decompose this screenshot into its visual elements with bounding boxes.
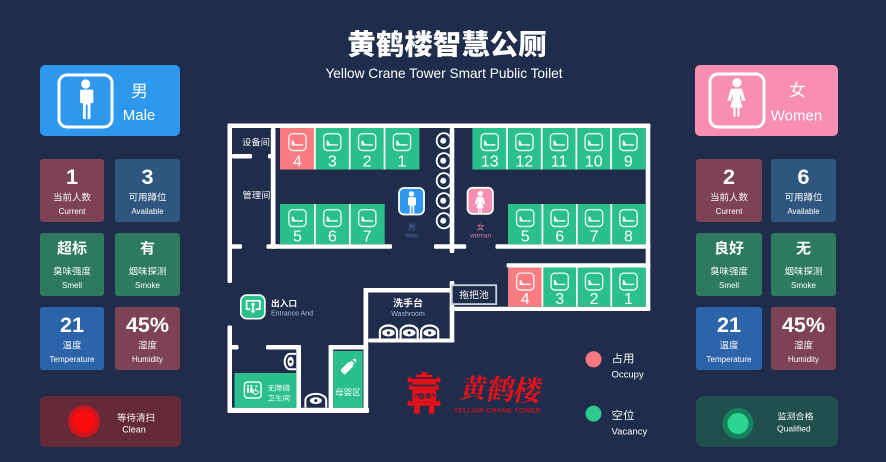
svg-text:Qualified: Qualified (777, 424, 811, 434)
svg-text:21: 21 (717, 313, 741, 337)
svg-text:Vacancy: Vacancy (612, 427, 648, 438)
svg-text:12: 12 (515, 154, 533, 171)
svg-text:2: 2 (590, 291, 599, 308)
svg-text:3: 3 (328, 154, 337, 171)
svg-text:Man: Man (405, 233, 418, 240)
svg-text:6: 6 (798, 165, 810, 189)
svg-text:13: 13 (481, 154, 499, 171)
svg-text:Clean: Clean (122, 425, 146, 435)
svg-text:Women: Women (771, 108, 822, 125)
svg-text:1: 1 (624, 291, 633, 308)
svg-text:2: 2 (723, 165, 735, 189)
svg-text:3: 3 (142, 165, 154, 189)
svg-text:Current: Current (59, 207, 86, 216)
svg-text:5: 5 (293, 229, 302, 246)
svg-text:Available: Available (131, 207, 164, 216)
svg-text:Smell: Smell (62, 281, 82, 290)
svg-text:1: 1 (398, 154, 407, 171)
svg-text:4: 4 (293, 154, 302, 171)
svg-text:45%: 45% (126, 313, 169, 337)
svg-text:6: 6 (328, 229, 337, 246)
svg-text:Washroom: Washroom (391, 311, 425, 318)
svg-text:10: 10 (585, 154, 603, 171)
svg-text:11: 11 (551, 154, 568, 171)
svg-text:4: 4 (521, 291, 530, 308)
svg-text:Humidity: Humidity (788, 355, 819, 364)
svg-text:Available: Available (787, 207, 820, 216)
svg-text:Current: Current (716, 207, 743, 216)
svg-text:Smell: Smell (719, 281, 739, 290)
svg-text:Occupy: Occupy (612, 370, 644, 381)
svg-text:Yellow Crane Tower Smart Publi: Yellow Crane Tower Smart Public Toilet (325, 66, 562, 81)
svg-text:Entrance And: Entrance And (271, 310, 313, 317)
svg-text:1: 1 (66, 165, 78, 189)
svg-text:YELLOW CRANE TOWER: YELLOW CRANE TOWER (454, 407, 542, 414)
svg-text:9: 9 (624, 154, 633, 171)
svg-text:7: 7 (590, 229, 599, 246)
svg-text:Smoke: Smoke (135, 281, 160, 290)
svg-text:Smoke: Smoke (791, 281, 816, 290)
svg-text:8: 8 (624, 229, 633, 246)
svg-text:21: 21 (60, 313, 84, 337)
svg-text:5: 5 (521, 229, 530, 246)
svg-text:Temperature: Temperature (707, 355, 752, 364)
svg-text:Temperature: Temperature (50, 355, 95, 364)
svg-text:6: 6 (555, 229, 564, 246)
svg-text:7: 7 (363, 229, 372, 246)
svg-text:2: 2 (363, 154, 372, 171)
svg-text:Humidity: Humidity (132, 355, 163, 364)
svg-text:45%: 45% (782, 313, 825, 337)
svg-text:woman: woman (469, 233, 491, 240)
svg-text:Male: Male (123, 107, 156, 124)
svg-text:3: 3 (555, 291, 564, 308)
